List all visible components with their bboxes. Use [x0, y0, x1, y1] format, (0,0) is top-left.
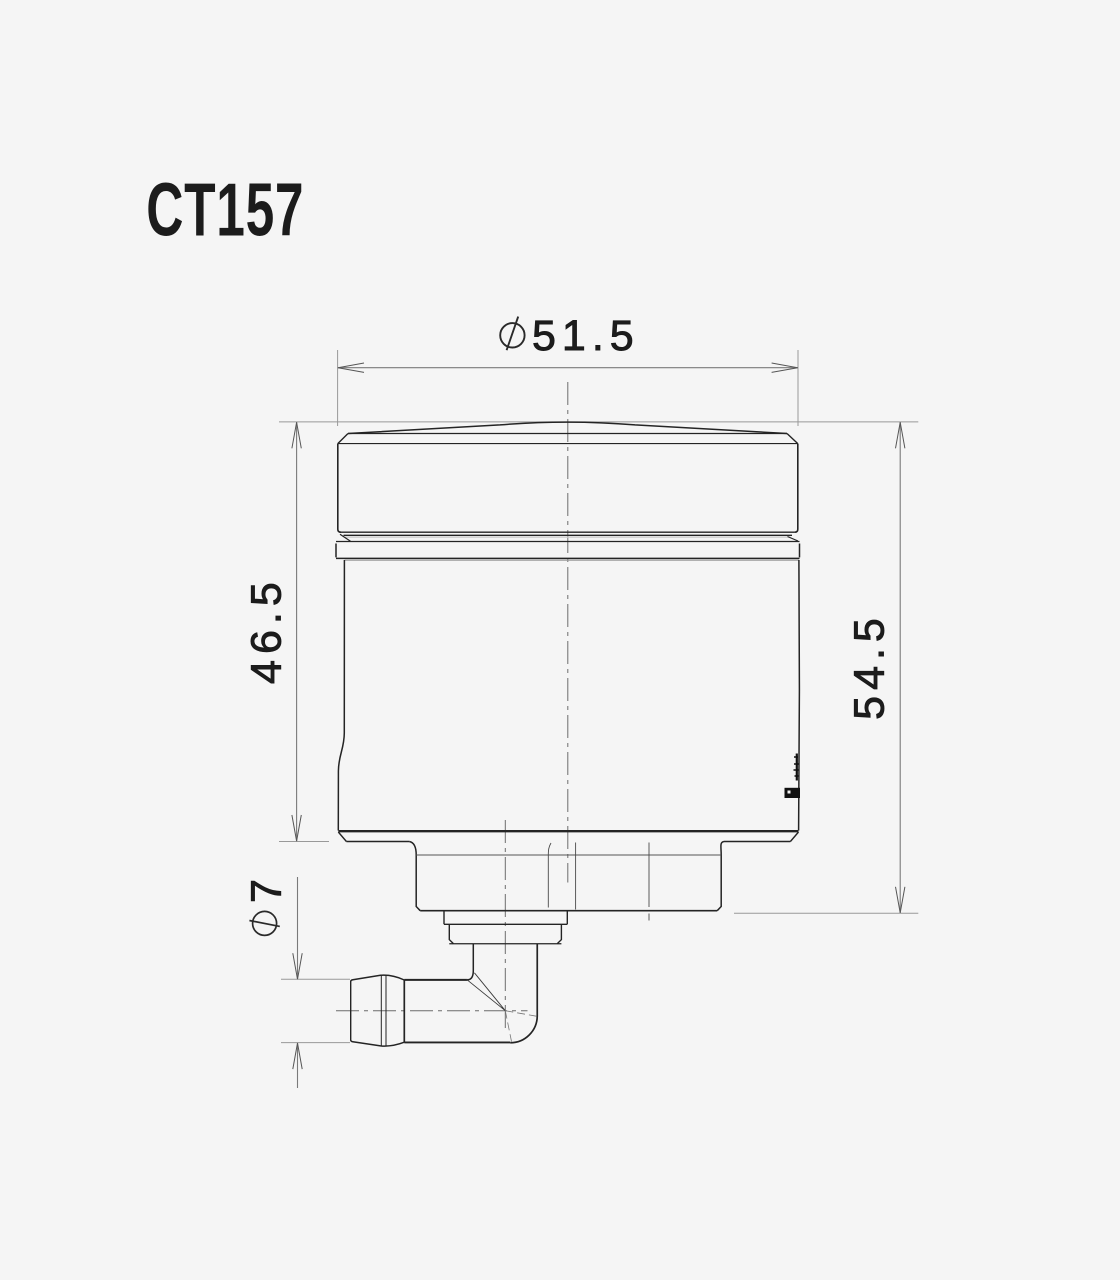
svg-text:46.5: 46.5	[243, 576, 291, 684]
svg-text:CT157: CT157	[146, 168, 304, 252]
svg-text:51.5: 51.5	[532, 312, 640, 360]
svg-text:54.5: 54.5	[846, 612, 894, 720]
svg-text:7: 7	[243, 879, 291, 903]
